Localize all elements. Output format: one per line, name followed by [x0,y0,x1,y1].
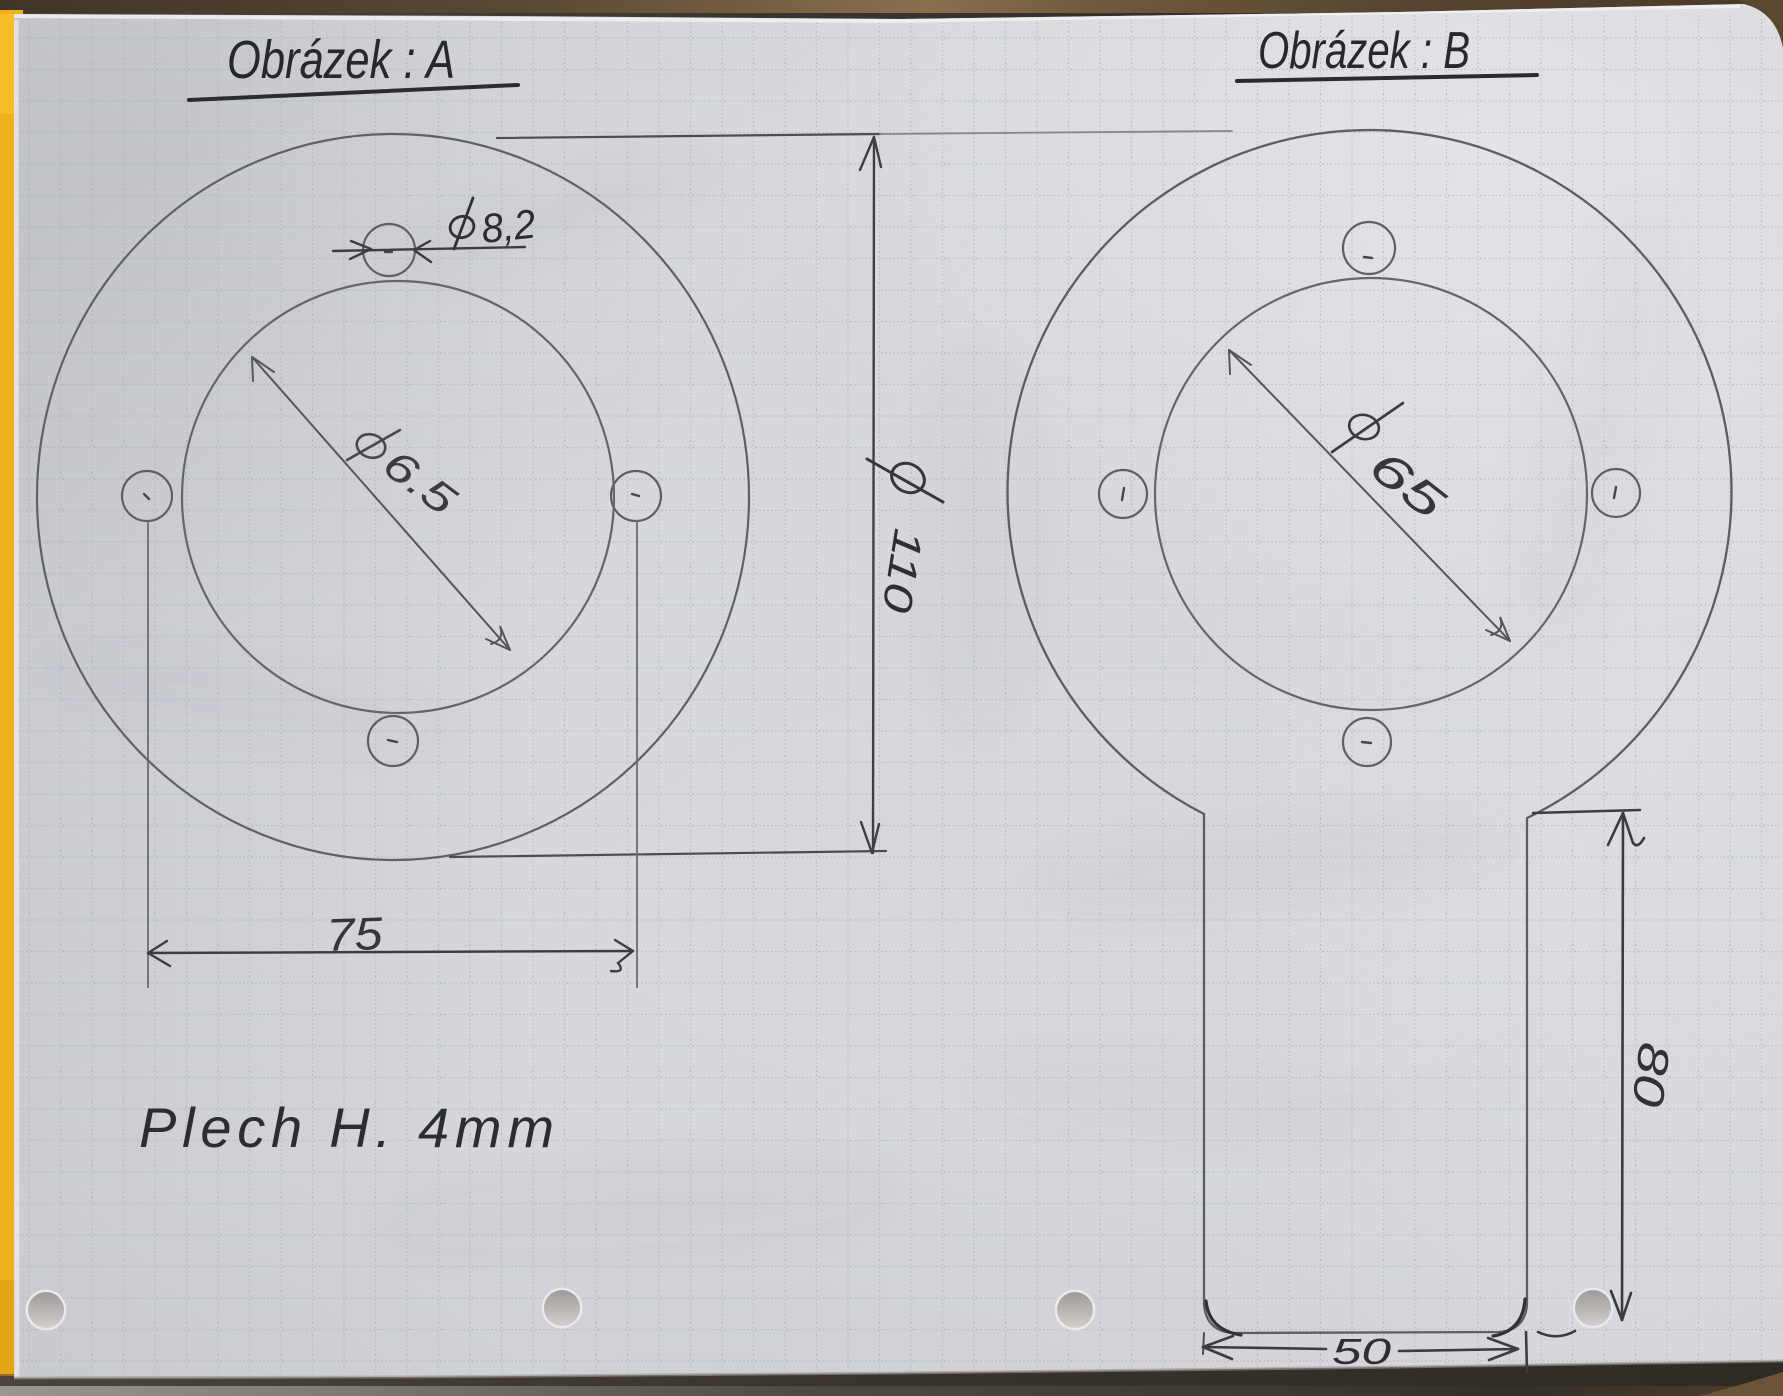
svg-text:8,2: 8,2 [479,201,538,252]
svg-text:80: 80 [1622,1040,1679,1110]
svg-text:Obrázek : B: Obrázek : B [1258,22,1470,80]
svg-text:Obrázek : A: Obrázek : A [227,30,455,90]
svg-text:75: 75 [326,907,384,961]
svg-text:Plech H. 4mm: Plech H. 4mm [139,1096,554,1159]
svg-text:50: 50 [1332,1331,1391,1372]
